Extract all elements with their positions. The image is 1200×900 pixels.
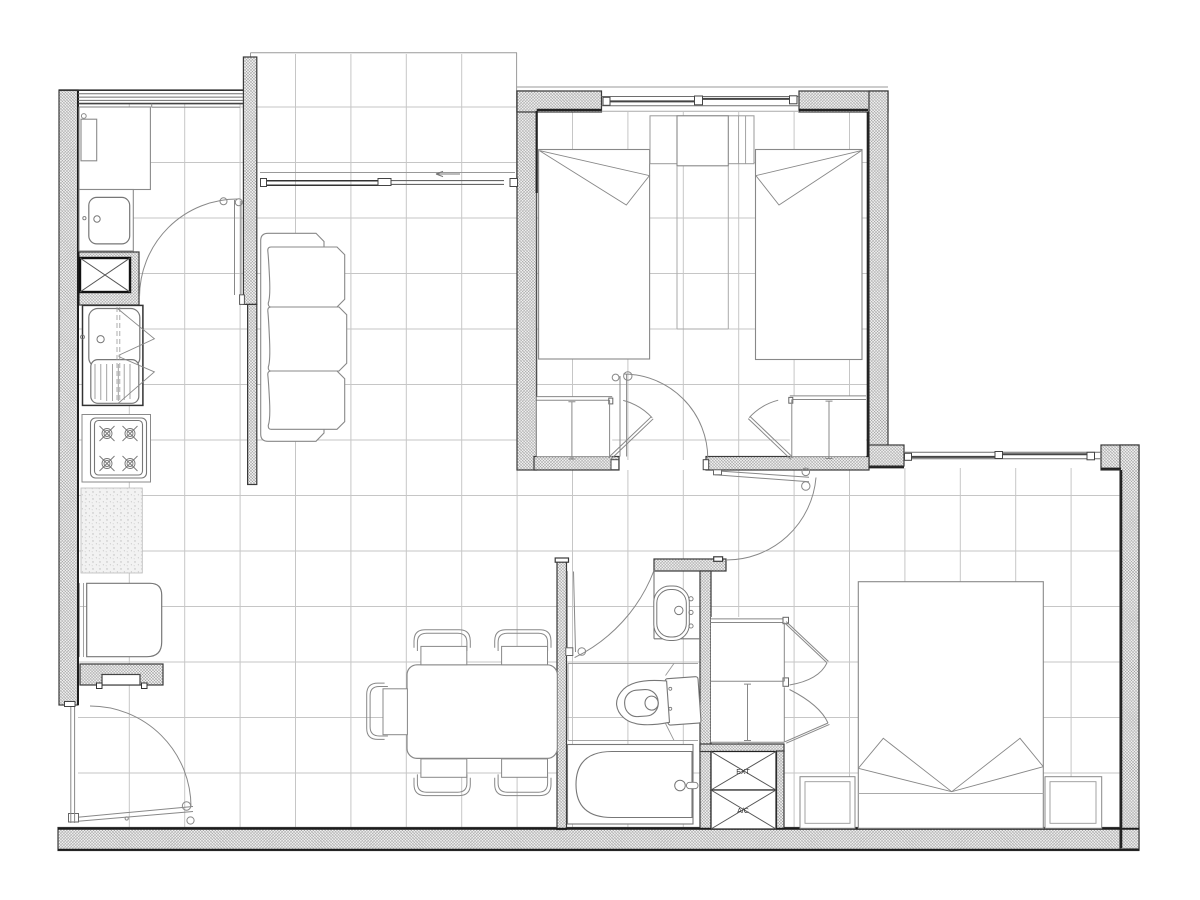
svg-text:EXT: EXT — [736, 769, 750, 776]
svg-text:A/C: A/C — [737, 808, 749, 815]
